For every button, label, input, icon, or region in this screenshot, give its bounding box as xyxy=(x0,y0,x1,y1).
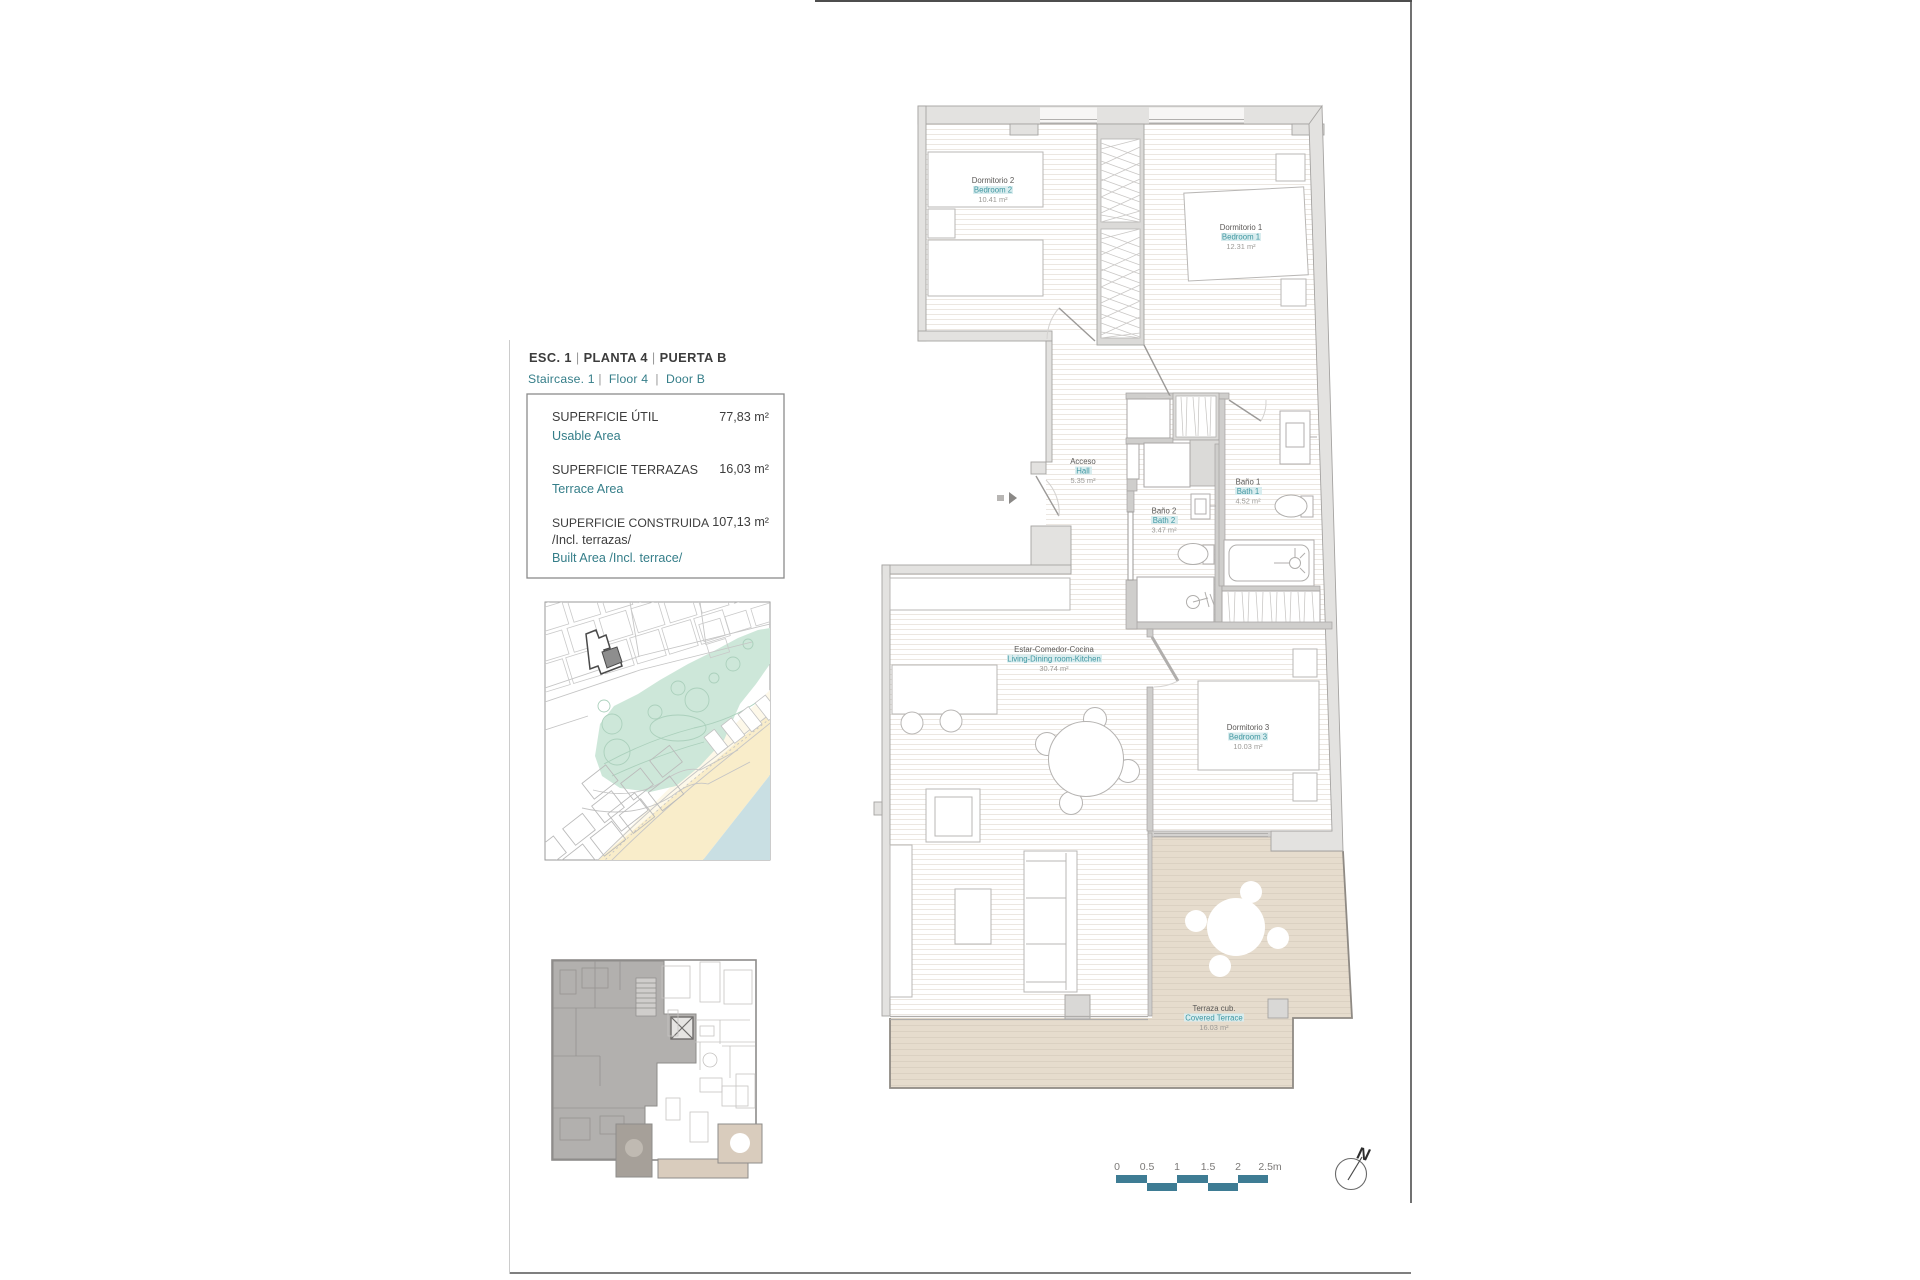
svg-text:5.35 m²: 5.35 m² xyxy=(1070,476,1096,485)
svg-text:Bath 1: Bath 1 xyxy=(1237,487,1260,496)
svg-text:Bedroom 2: Bedroom 2 xyxy=(974,186,1012,195)
svg-text:3.47 m²: 3.47 m² xyxy=(1151,526,1177,535)
svg-text:Bath 2: Bath 2 xyxy=(1153,516,1176,525)
svg-text:SUPERFICIE CONSTRUIDA: SUPERFICIE CONSTRUIDA xyxy=(552,516,710,530)
svg-text:Usable Area: Usable Area xyxy=(552,429,621,443)
svg-text:Living-Dining room-Kitchen: Living-Dining room-Kitchen xyxy=(1007,655,1101,664)
svg-text:Dormitorio 3: Dormitorio 3 xyxy=(1227,723,1269,732)
svg-text:12.31 m²: 12.31 m² xyxy=(1226,242,1256,251)
svg-text:Dormitorio 1: Dormitorio 1 xyxy=(1220,223,1262,232)
svg-text:2.5m: 2.5m xyxy=(1258,1161,1282,1173)
svg-text:Dormitorio 2: Dormitorio 2 xyxy=(972,176,1014,185)
svg-text:ESC. 1 | PLANTA 4 | PUERTA B: ESC. 1 | PLANTA 4 | PUERTA B xyxy=(529,350,727,365)
svg-text:Hall: Hall xyxy=(1076,467,1090,476)
svg-text:4.52 m²: 4.52 m² xyxy=(1235,497,1261,506)
svg-text:Staircase. 1 | Floor 4 | D: Staircase. 1 | Floor 4 | Door B xyxy=(528,372,705,386)
svg-text:77,83 m²: 77,83 m² xyxy=(719,410,769,424)
svg-text:N: N xyxy=(1355,1143,1372,1165)
svg-text:16.03 m²: 16.03 m² xyxy=(1199,1023,1229,1032)
svg-text:Baño 2: Baño 2 xyxy=(1152,507,1177,516)
svg-text:SUPERFICIE TERRAZAS: SUPERFICIE TERRAZAS xyxy=(552,463,698,477)
svg-text:16,03 m²: 16,03 m² xyxy=(719,462,769,476)
svg-text:Built Area /Incl. terrace/: Built Area /Incl. terrace/ xyxy=(552,551,683,565)
svg-text:Terrace Area: Terrace Area xyxy=(552,482,623,496)
svg-text:/Incl. terrazas/: /Incl. terrazas/ xyxy=(552,533,632,547)
svg-text:Terraza cub.: Terraza cub. xyxy=(1193,1004,1236,1013)
svg-text:Estar-Comedor-Cocina: Estar-Comedor-Cocina xyxy=(1014,645,1094,654)
svg-text:1.5: 1.5 xyxy=(1201,1161,1216,1173)
svg-text:Bedroom 3: Bedroom 3 xyxy=(1229,733,1267,742)
svg-text:Bedroom 1: Bedroom 1 xyxy=(1222,233,1260,242)
svg-text:0.5: 0.5 xyxy=(1140,1161,1155,1173)
svg-text:107,13 m²: 107,13 m² xyxy=(712,515,769,529)
svg-text:1: 1 xyxy=(1174,1161,1180,1173)
svg-text:Acceso: Acceso xyxy=(1070,457,1096,466)
svg-text:10.41 m²: 10.41 m² xyxy=(978,195,1008,204)
svg-text:Covered Terrace: Covered Terrace xyxy=(1185,1014,1243,1023)
svg-text:SUPERFICIE ÚTIL: SUPERFICIE ÚTIL xyxy=(552,409,658,424)
svg-text:10.03 m²: 10.03 m² xyxy=(1233,742,1263,751)
svg-text:Baño 1: Baño 1 xyxy=(1236,478,1261,487)
svg-text:0: 0 xyxy=(1114,1161,1120,1173)
svg-text:2: 2 xyxy=(1235,1161,1241,1173)
svg-text:30.74 m²: 30.74 m² xyxy=(1039,664,1069,673)
